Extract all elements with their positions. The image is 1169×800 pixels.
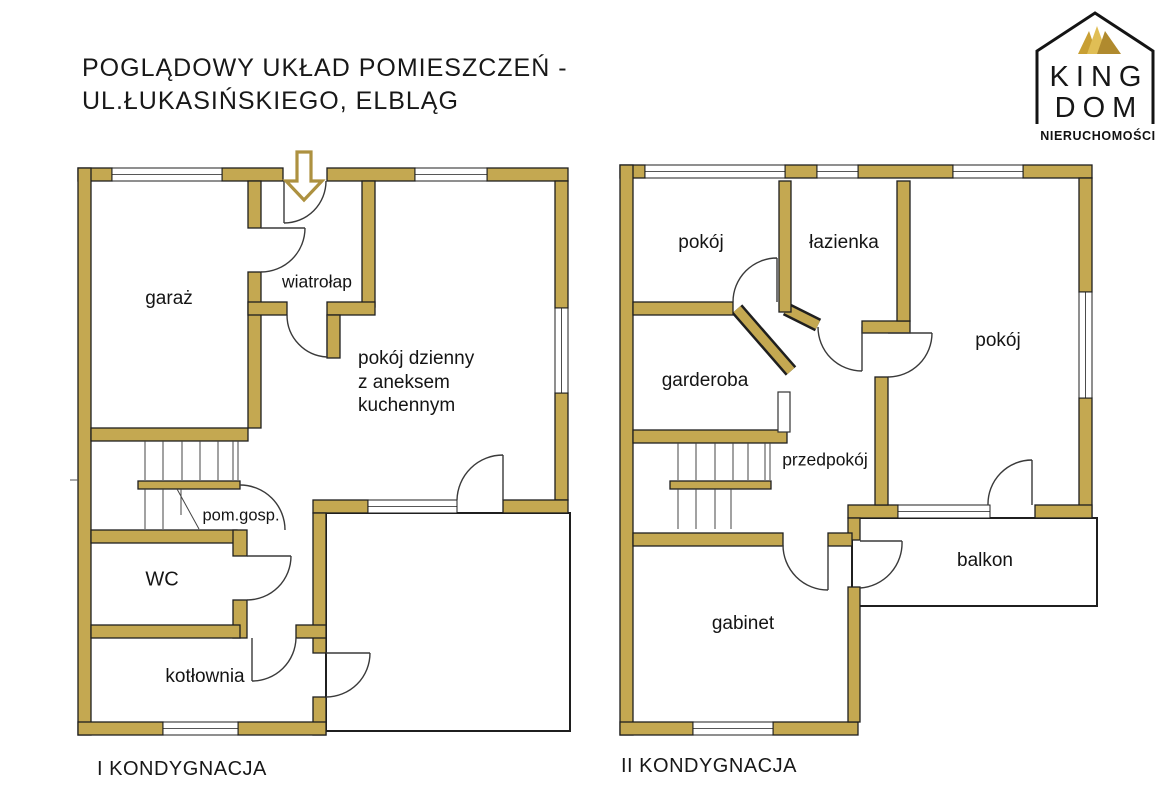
room-label-utility: pom.gosp. [202,507,279,526]
agency-logo: KING DOM NIERUCHOMOŚCI [1028,13,1168,145]
terrace-outline [326,513,570,731]
wardrobe-door-leaf [778,392,790,432]
logo-subtitle: NIERUCHOMOŚCI [1040,128,1155,143]
floor2-stairs [670,443,771,529]
page-title-line1: POGLĄDOWY UKŁAD POMIESZCZEŃ - [82,52,568,85]
room-label-office: gabinet [712,613,774,635]
floor2-diagonal-walls [737,309,818,371]
room-label-wc: WC [145,569,178,592]
floorplan-page: KING DOM NIERUCHOMOŚCI POGLĄDOWY UKŁAD P… [0,0,1169,800]
room-label-living: pokój dzienny z aneksem kuchennym [358,347,474,418]
entrance-arrow-icon [286,152,322,200]
room-label-balcony: balkon [957,550,1013,572]
logo-name-top: KING [1050,61,1149,93]
room-label-hall: przedpokój [782,450,868,471]
room-label-boiler: kotłownia [165,666,244,688]
floor1-label: I KONDYGNACJA [97,758,267,781]
page-title: POGLĄDOWY UKŁAD POMIESZCZEŃ - UL.ŁUKASIŃ… [82,52,568,118]
room-label-bathroom: łazienka [809,232,879,254]
floor2-label: II KONDYGNACJA [621,755,797,778]
room-label-vestibule: wiatrołap [282,272,352,293]
logo-name-bottom: DOM [1055,92,1144,124]
floor-plan-1 [70,152,570,735]
room-label-room-top: pokój [678,232,723,254]
page-title-line2: UL.ŁUKASIŃSKIEGO, ELBLĄG [82,85,568,118]
room-label-garage: garaż [145,288,193,310]
room-label-wardrobe: garderoba [662,370,749,392]
room-label-room-right: pokój [975,330,1020,352]
